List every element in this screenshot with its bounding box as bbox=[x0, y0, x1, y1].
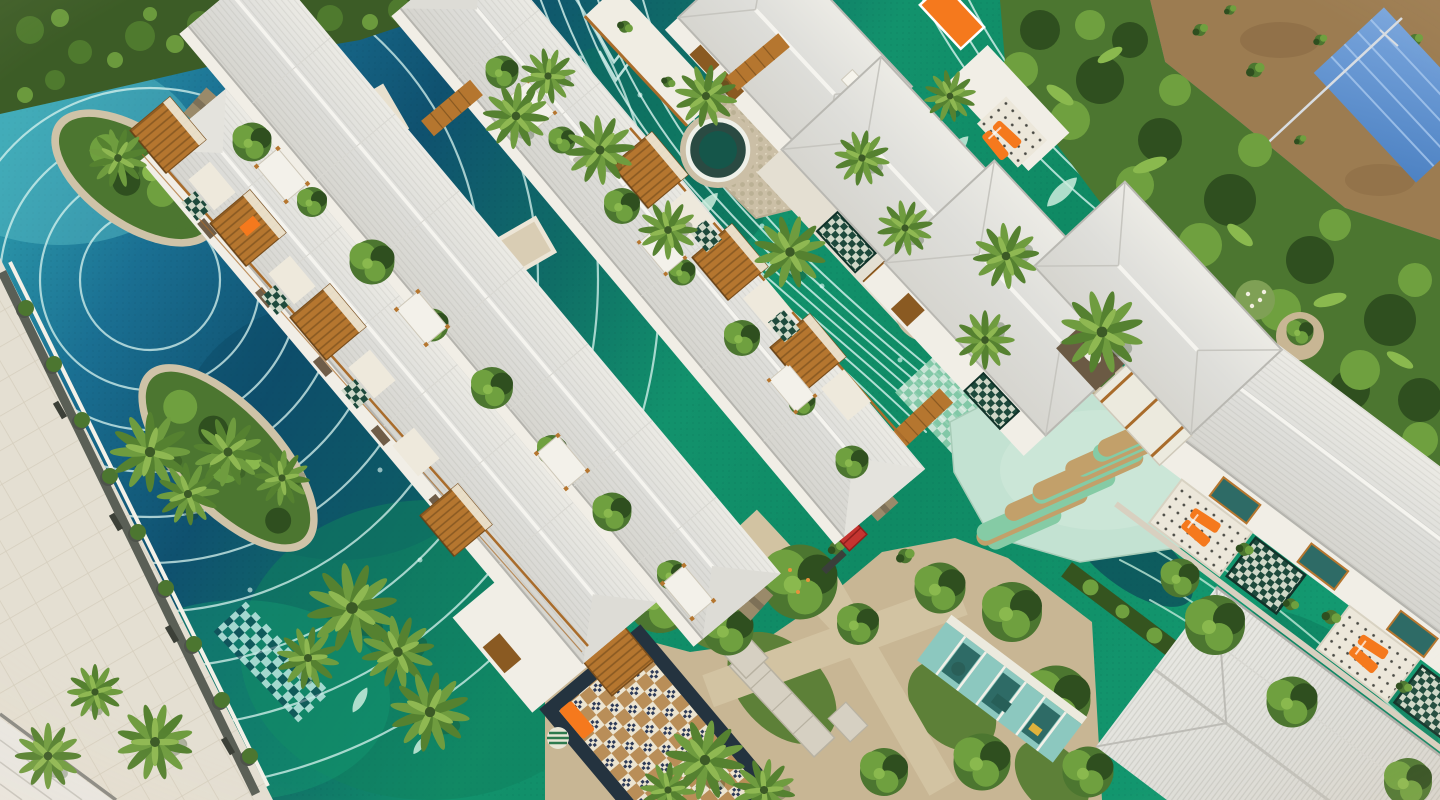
aerial-resort-photo bbox=[0, 0, 1440, 800]
vignette-overlay bbox=[0, 0, 1440, 800]
aerial-photo-canvas bbox=[0, 0, 1440, 800]
